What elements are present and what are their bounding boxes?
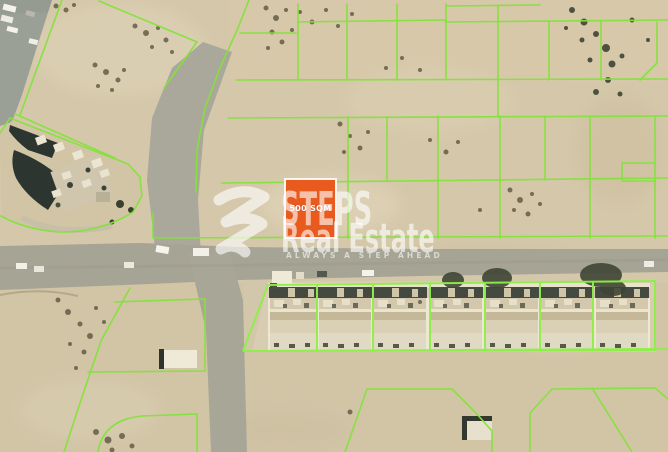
highlighted-plot[interactable]: 500 SQM xyxy=(284,178,337,239)
shed-south xyxy=(464,418,492,440)
villa-row xyxy=(244,281,656,352)
satellite-map: 500 SQM STEPS Real Estate ALWAYS A STEP … xyxy=(0,0,668,452)
shed-west xyxy=(162,350,197,368)
plot-area-label: 500 SQM xyxy=(289,204,331,213)
